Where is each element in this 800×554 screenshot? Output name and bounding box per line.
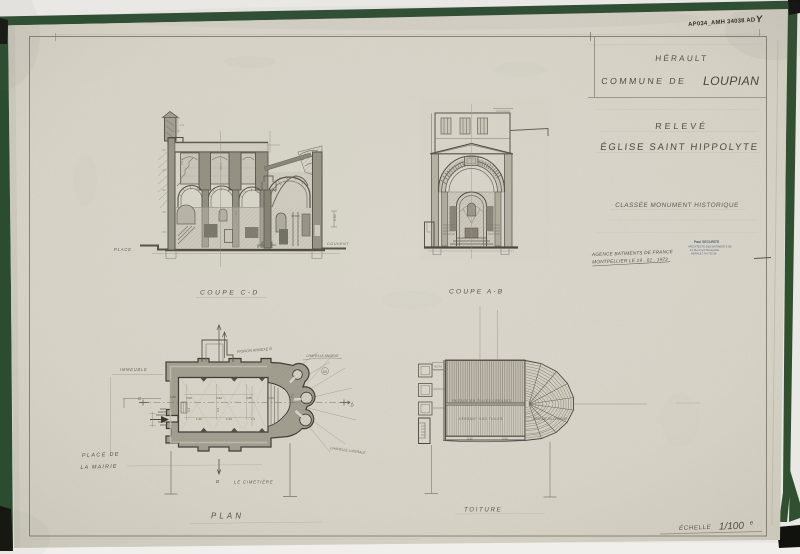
svg-text:3.85: 3.85 <box>246 396 252 400</box>
svg-text:6.4: 6.4 <box>187 407 191 412</box>
svg-text:COUPE A-B: COUPE A-B <box>449 289 504 296</box>
svg-text:CROUPE DU CHOEUR: CROUPE DU CHOEUR <box>533 417 568 421</box>
svg-text:HÉRAULT: HÉRAULT <box>655 53 709 63</box>
svg-text:ARCHITECTE DES BATIMENTS DE: ARCHITECTE DES BATIMENTS DE <box>688 245 732 249</box>
svg-text:ÉGLISE SAINT HIPPOLYTE: ÉGLISE SAINT HIPPOLYTE <box>600 142 760 153</box>
svg-text:TOITURE: TOITURE <box>464 507 502 514</box>
svg-text:50: 50 <box>323 369 328 374</box>
svg-text:ÉCHELLE: ÉCHELLE <box>679 524 712 532</box>
svg-text:12 Rue Foch Montpellier: 12 Rue Foch Montpellier <box>690 248 719 252</box>
svg-text:PLAN: PLAN <box>211 512 244 521</box>
svg-text:COUPE C-D: COUPE C-D <box>200 290 260 297</box>
svg-text:IMMEUBLE: IMMEUBLE <box>120 367 147 372</box>
svg-text:0.60: 0.60 <box>502 437 508 441</box>
svg-text:CLASSÉE MONUMENT HISTORIQUE: CLASSÉE MONUMENT HISTORIQUE <box>615 200 740 209</box>
svg-text:VERSANT SUD TUILES: VERSANT SUD TUILES <box>459 417 503 421</box>
svg-text:Paul SECURITE: Paul SECURITE <box>694 240 720 244</box>
svg-text:LOUPIAN: LOUPIAN <box>703 74 759 88</box>
svg-text:LE CIMETIÈRE: LE CIMETIÈRE <box>234 480 273 485</box>
svg-text:COMMUNE DE: COMMUNE DE <box>601 76 687 86</box>
svg-text:NOTA: NOTA <box>434 364 442 368</box>
svg-text:RELEVÉ: RELEVÉ <box>655 121 709 131</box>
svg-text:1/100: 1/100 <box>719 521 745 533</box>
svg-text:HERAULT Tel 725.38: HERAULT Tel 725.38 <box>691 252 717 256</box>
svg-text:FAITAGE EN TUILES CREUSES: FAITAGE EN TUILES CREUSES <box>452 399 512 403</box>
svg-text:CHAPELLE ANNEXE: CHAPELLE ANNEXE <box>306 354 339 358</box>
svg-text:5.80: 5.80 <box>170 395 176 399</box>
svg-text:D: D <box>351 403 354 408</box>
svg-text:4.20: 4.20 <box>268 396 274 400</box>
svg-text:B: B <box>216 479 219 484</box>
svg-text:PLACE: PLACE <box>114 247 132 252</box>
svg-text:3.90: 3.90 <box>216 396 222 400</box>
svg-text:0.60: 0.60 <box>467 437 473 441</box>
svg-text:3.90: 3.90 <box>186 396 192 400</box>
